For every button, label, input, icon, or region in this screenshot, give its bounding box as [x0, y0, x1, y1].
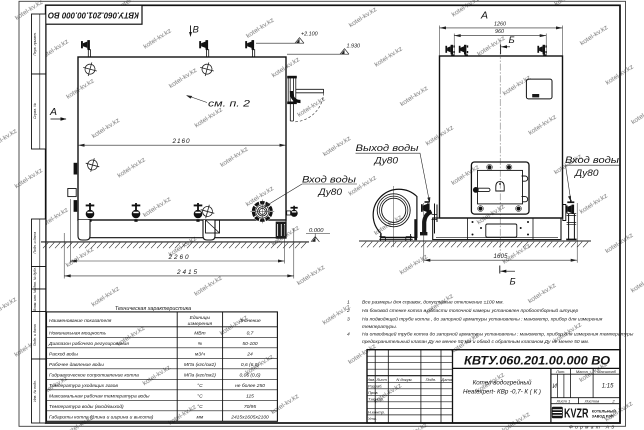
svg-text:960: 960 [495, 29, 504, 35]
svg-text:N докум.: N докум. [396, 377, 412, 382]
svg-text:см. п. 2: см. п. 2 [208, 99, 250, 109]
svg-text:Выход воды: Выход воды [356, 143, 419, 153]
svg-text:м3/ч: м3/ч [195, 351, 205, 357]
svg-text:Утв.: Утв. [368, 416, 377, 421]
svg-text:Подп. и дата: Подп. и дата [33, 232, 37, 254]
svg-text:Гидравлическое сопротивление к: Гидравлическое сопротивление котла [49, 372, 139, 378]
svg-text:Взам. инв. №: Взам. инв. № [33, 289, 37, 311]
svg-text:1605: 1605 [494, 254, 509, 260]
svg-text:Максимальная рабочая температу: Максимальная рабочая температура воды [49, 393, 150, 399]
svg-text:Номинальная мощность: Номинальная мощность [49, 330, 107, 336]
svg-text:Температура уходящих газов: Температура уходящих газов [49, 383, 118, 389]
svg-text:А: А [480, 10, 488, 22]
svg-text:Формат А3: Формат А3 [569, 424, 614, 430]
svg-text:Лит.: Лит. [555, 369, 565, 374]
svg-text:70/95: 70/95 [244, 404, 257, 410]
svg-text:0,7: 0,7 [247, 330, 254, 336]
svg-text:предохранительный клапан Ду н: предохранительный клапан Ду не менее 50 … [362, 338, 589, 345]
svg-text:Температура воды (вход/выход): Температура воды (вход/выход) [49, 404, 124, 410]
svg-text:°С: °С [197, 383, 203, 389]
svg-text:КВТУ.060.201.00.000 ВО: КВТУ.060.201.00.000 ВО [464, 354, 611, 368]
svg-text:МПа (кгс/см2): МПа (кгс/см2) [184, 372, 216, 378]
svg-text:Б: Б [510, 276, 516, 287]
svg-text:Диапазон рабочего регулировани: Диапазон рабочего регулирования [48, 341, 129, 347]
svg-text:115: 115 [246, 393, 254, 399]
svg-text:1260: 1260 [494, 21, 506, 27]
svg-text:24: 24 [246, 351, 253, 357]
svg-text:Heatexpert- КВр -0,7- К ( К ): Heatexpert- КВр -0,7- К ( К ) [463, 389, 541, 396]
svg-text:Разраб.: Разраб. [368, 384, 382, 389]
svg-text:Н.контр.: Н.контр. [368, 410, 385, 415]
svg-text:%: % [198, 341, 203, 347]
svg-text:измерения: измерения [188, 322, 213, 327]
svg-text:КВТУ.060.201.00.000 ВО: КВТУ.060.201.00.000 ВО [48, 11, 139, 21]
svg-text:мм: мм [197, 415, 204, 420]
svg-text:4: 4 [347, 332, 350, 338]
svg-text:А: А [49, 106, 57, 118]
svg-text:Ду80: Ду80 [574, 168, 599, 178]
svg-text:Пров.: Пров. [368, 390, 379, 395]
svg-text:В: В [193, 25, 200, 36]
svg-text:Все размеры для справок, допус: Все размеры для справок, допустимые откл… [362, 300, 504, 306]
svg-text:Наименование показателя: Наименование показателя [49, 318, 112, 324]
svg-text:ЗАВОД РЭП: ЗАВОД РЭП [592, 415, 614, 419]
svg-text:+2.100: +2.100 [301, 32, 318, 38]
svg-text:Дата: Дата [440, 377, 452, 382]
svg-text:0,06 (0,6): 0,06 (0,6) [240, 372, 261, 378]
svg-text:0,6 (6,0): 0,6 (6,0) [241, 362, 260, 368]
svg-text:1:15: 1:15 [602, 384, 614, 390]
svg-text:Лист: Лист [376, 377, 388, 382]
svg-text:МПа (кгс/см2): МПа (кгс/см2) [184, 362, 216, 368]
svg-text:Т.контр.: Т.контр. [368, 397, 384, 402]
svg-text:0.000: 0.000 [309, 228, 324, 234]
svg-text:Перв. примен.: Перв. примен. [33, 32, 37, 55]
svg-text:Масса: Масса [576, 369, 589, 374]
svg-text:И: И [552, 384, 557, 390]
svg-text:Изм.: Изм. [367, 377, 376, 382]
svg-text:Котел водогрейный: Котел водогрейный [473, 379, 532, 386]
svg-text:Значение: Значение [239, 318, 261, 324]
svg-text:2: 2 [346, 308, 350, 314]
svg-text:Инв. № дубл.: Инв. № дубл. [33, 267, 37, 289]
svg-text:1: 1 [347, 300, 350, 306]
svg-text:Инв. № подл.: Инв. № подл. [33, 380, 37, 402]
svg-text:МВт: МВт [194, 330, 205, 336]
svg-text:На боковой стенке котла в обла: На боковой стенке котла в области топочн… [362, 307, 578, 314]
svg-text:Расход воды: Расход воды [49, 351, 78, 357]
svg-text:температуры.: температуры. [362, 325, 397, 330]
svg-text:KVZR: KVZR [564, 406, 589, 421]
svg-text:Подп. и дата: Подп. и дата [33, 324, 37, 346]
svg-text:не более 250: не более 250 [235, 383, 265, 389]
svg-text:2415х1605х2100: 2415х1605х2100 [230, 414, 269, 420]
svg-text:Рабочее давление воды: Рабочее давление воды [49, 362, 104, 368]
svg-text:Подп.: Подп. [426, 377, 437, 382]
svg-text:°С: °С [197, 393, 203, 399]
svg-text:Габариты котла (длина и ширина: Габариты котла (длина и ширина и высота) [49, 414, 154, 420]
svg-text:3: 3 [347, 317, 350, 323]
svg-text:Справ. №: Справ. № [33, 103, 37, 119]
svg-text:Вход воды: Вход воды [565, 155, 619, 165]
svg-text:°С: °С [197, 404, 203, 410]
svg-text:Листов: Листов [584, 398, 600, 403]
svg-text:На отводящей трубе котла до за: На отводящей трубе котла до запорной арм… [362, 331, 634, 338]
svg-text:2160: 2160 [172, 138, 190, 145]
svg-text:Вход воды: Вход воды [302, 175, 356, 185]
svg-text:На подводящей трубе котла ,: На подводящей трубе котла , до запорной … [362, 316, 603, 323]
svg-text:Техническая характеристика: Техническая характеристика [115, 306, 191, 312]
svg-text:Масштаб: Масштаб [597, 369, 616, 374]
svg-text:КОТЕЛЬНЫЙ: КОТЕЛЬНЫЙ [592, 409, 616, 413]
svg-text:Ду80: Ду80 [317, 187, 342, 197]
svg-text:50-100: 50-100 [242, 341, 258, 347]
svg-text:Б: Б [509, 35, 515, 46]
svg-text:Лист 1: Лист 1 [556, 398, 571, 403]
svg-text:1.930: 1.930 [347, 44, 361, 50]
svg-text:Единицы: Единицы [190, 315, 211, 321]
svg-text:Ду80: Ду80 [373, 156, 398, 166]
